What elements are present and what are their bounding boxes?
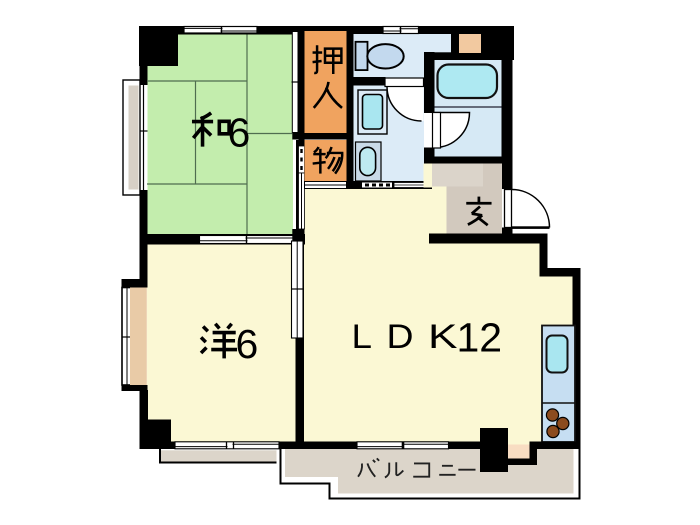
svg-text:6: 6 xyxy=(236,321,259,367)
svg-text:12: 12 xyxy=(457,315,503,361)
svg-text:D: D xyxy=(387,318,414,356)
svg-text:K: K xyxy=(428,318,458,356)
svg-text:L: L xyxy=(352,318,373,356)
svg-text:6: 6 xyxy=(228,110,251,156)
